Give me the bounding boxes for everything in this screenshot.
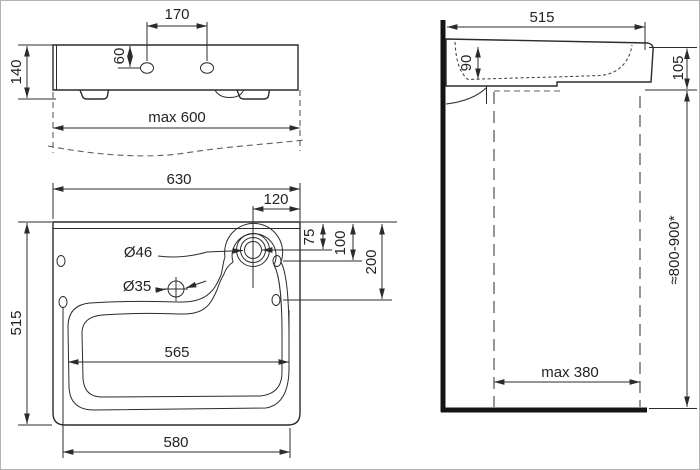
- fixing-hole-left-lower: [59, 297, 67, 308]
- drain-diameter-label: Ø46: [124, 244, 152, 261]
- dim-170-label: 170: [164, 6, 189, 23]
- tap-hole-right: [201, 63, 214, 73]
- dim-565-label: 565: [164, 344, 189, 361]
- dim-60-label: 60: [111, 48, 128, 65]
- tap-hole-left: [141, 63, 154, 73]
- bowl-outer-contour: [68, 223, 289, 410]
- tap-diameter-label: Ø35: [123, 278, 151, 295]
- image-border: [1, 1, 700, 470]
- tap-hole-crosshair: [164, 277, 188, 301]
- dim-100-label: 100: [332, 230, 349, 255]
- mounting-foot-right: [237, 90, 270, 99]
- dim-mount-height-label: ≈800-900*: [666, 215, 683, 284]
- dim-105-label: 105: [670, 55, 687, 80]
- fixing-hole-right-upper: [273, 256, 281, 267]
- tap-diameter-leader-right: [186, 281, 206, 288]
- dim-515-label: 515: [8, 310, 25, 335]
- plan-view: 630 120 75 100 200 Ø46 Ø35 565 515: [8, 171, 397, 458]
- drawing-canvas: 170 60 140 max 600 630: [0, 0, 700, 470]
- tap-diameter-leader-left: [156, 289, 166, 290]
- fixing-hole-right-lower: [272, 295, 280, 306]
- dim-max380-label: max 380: [541, 364, 599, 381]
- dim-515-top-label: 515: [529, 9, 554, 26]
- technical-drawing: 170 60 140 max 600 630: [0, 0, 700, 470]
- basin-front-outline: [53, 45, 298, 90]
- fixing-hole-left-upper: [57, 256, 65, 267]
- dim-120-label: 120: [263, 191, 288, 208]
- dim-75-label: 75: [301, 229, 318, 246]
- wall-break-line: [48, 140, 304, 156]
- basin-plan-outline: [53, 222, 300, 425]
- dim-90-label: 90: [458, 55, 475, 72]
- drain-diameter-leader: [158, 251, 243, 257]
- dim-140-label: 140: [8, 59, 25, 84]
- dim-max600-label: max 600: [148, 109, 206, 126]
- dim-170-extensions: [147, 22, 207, 61]
- front-view: 170 60 140 max 600: [8, 6, 304, 156]
- wall-bracket: [446, 86, 487, 104]
- side-view: 515 90 105 ≈800-900* max 380: [441, 9, 697, 412]
- dim-580-label: 580: [163, 434, 188, 451]
- bowl-hidden-profile: [455, 42, 632, 80]
- dim-200-label: 200: [363, 249, 380, 274]
- dim-630-label: 630: [166, 171, 191, 188]
- mounting-foot-left: [80, 90, 109, 99]
